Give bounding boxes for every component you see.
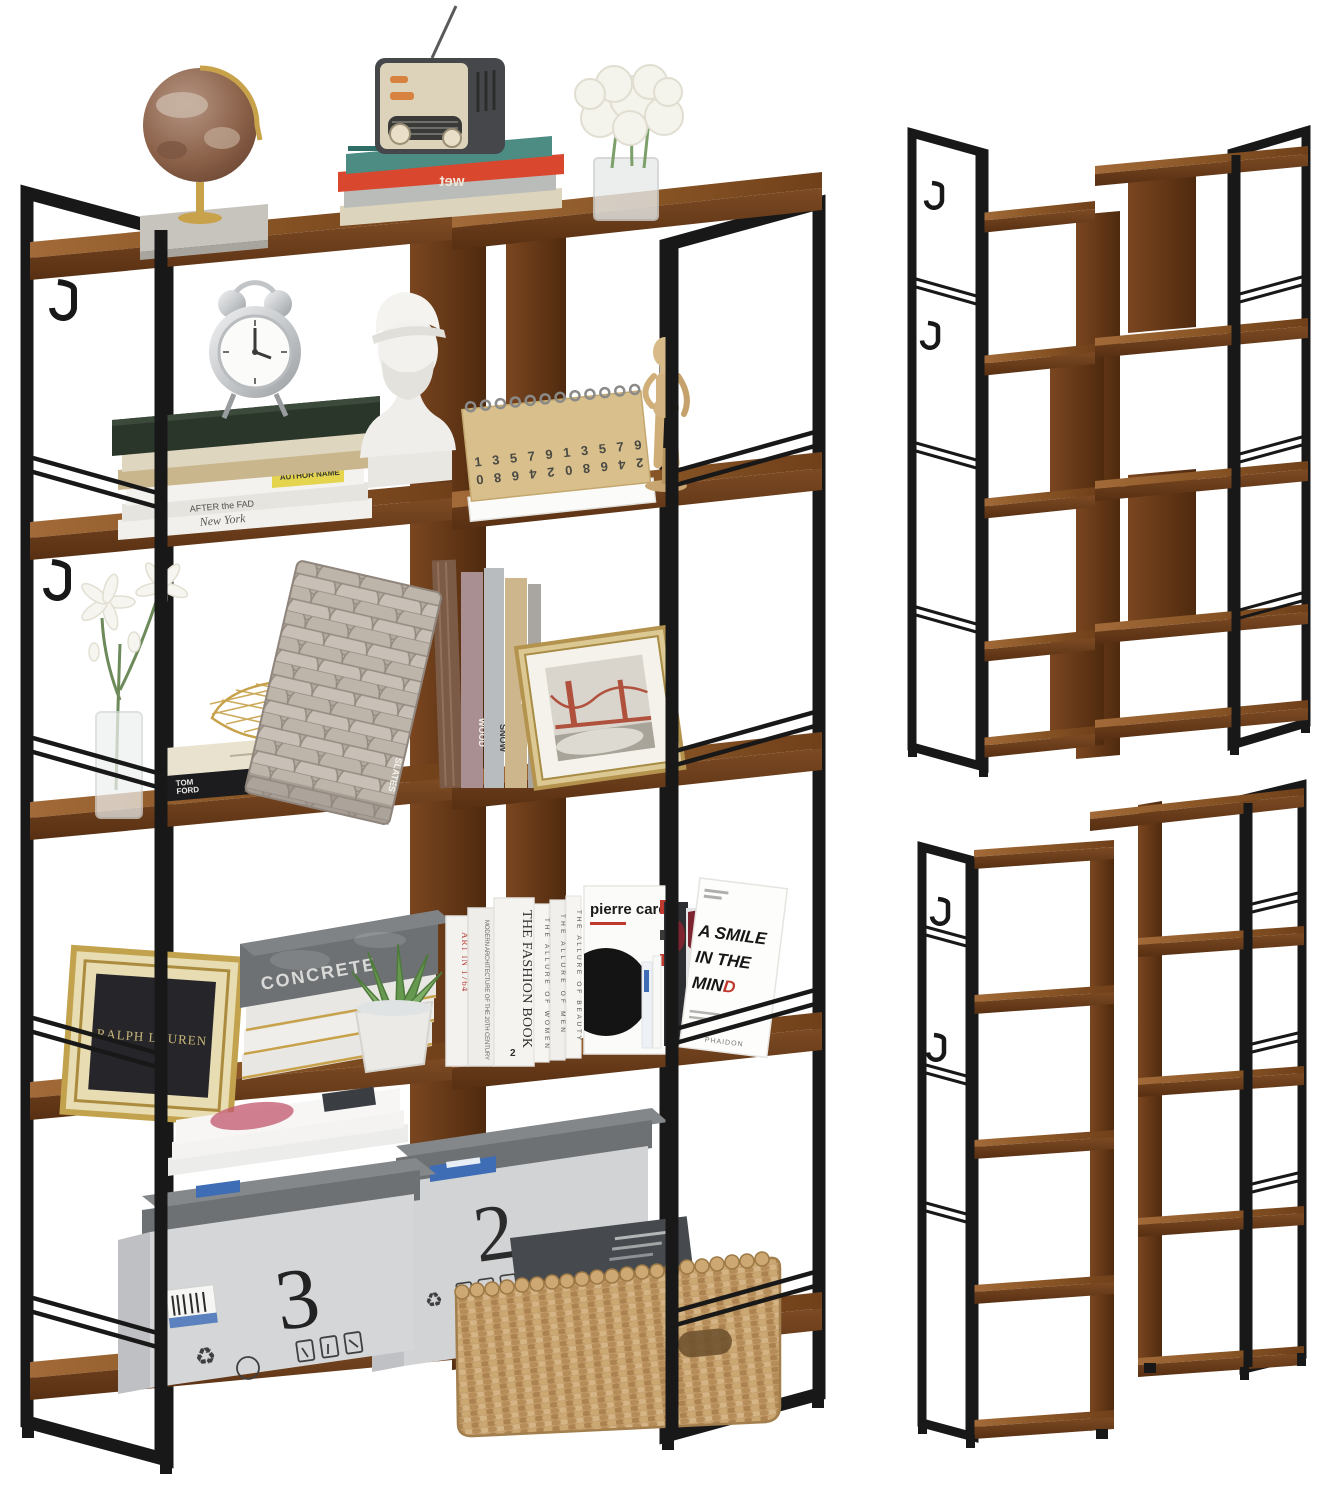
styled-corner-bookshelf-view: wet New York AFTER the FAD [0, 0, 880, 1500]
frame-foot [662, 1434, 674, 1450]
fashion-spine-number: 2 [510, 1048, 516, 1059]
bridge-photo-frame [516, 627, 684, 788]
left-metal-frame [912, 133, 984, 767]
side-hook [46, 562, 68, 598]
unit-b-shelves [1090, 788, 1304, 1377]
empty-corner-bookshelf-view [880, 55, 1338, 795]
red-book-spine-text: wet [439, 173, 465, 190]
side-hook [926, 183, 942, 208]
alarm-clock [209, 283, 301, 418]
frame-foot [966, 1435, 975, 1448]
recycle-icon: ♻ [193, 1342, 218, 1372]
column-foot [1096, 1429, 1108, 1439]
recycle-icon: ♻ [424, 1289, 445, 1313]
barcode-label [166, 1285, 218, 1329]
side-hook [922, 323, 938, 348]
frame-foot [1230, 743, 1239, 755]
product-photo: wet New York AFTER the FAD [0, 0, 1338, 1500]
column-foot [1144, 1363, 1156, 1373]
desk-calendar: 1 3 5 7 9 1 3 5 7 9 2 4 6 8 0 2 4 6 8 0 [458, 384, 655, 521]
vintage-radio [375, 6, 505, 154]
frame-foot [1240, 1367, 1249, 1380]
side-hook [52, 282, 74, 318]
side-hook [932, 899, 948, 924]
frame-foot [1297, 1353, 1306, 1366]
fashion-spine: THE FASHION BOOK [519, 910, 534, 1048]
texture-books: WOOD SNOW SANDSTONE SLATES [244, 560, 541, 826]
zigzag-column [1128, 173, 1196, 333]
frame-foot [812, 1392, 824, 1408]
allure-men-spine: THE ALLURE OF MEN [559, 914, 566, 1032]
magazine-row: ART IN 1764 MODERN ARCHITECTURE OF THE 2… [446, 878, 787, 1066]
frame-foot [22, 1422, 34, 1438]
split-bookshelves-view [880, 755, 1338, 1497]
zigzag-column [1050, 347, 1104, 499]
side-hook [928, 1035, 944, 1060]
architecture-spine: MODERN ARCHITECTURE OF THE 20TH CENTURY [483, 920, 489, 1060]
clock-book-stack: New York AFTER the FAD AUTHOR NAME [112, 396, 380, 540]
frame-foot [918, 1421, 927, 1434]
frame-foot [1301, 721, 1310, 733]
